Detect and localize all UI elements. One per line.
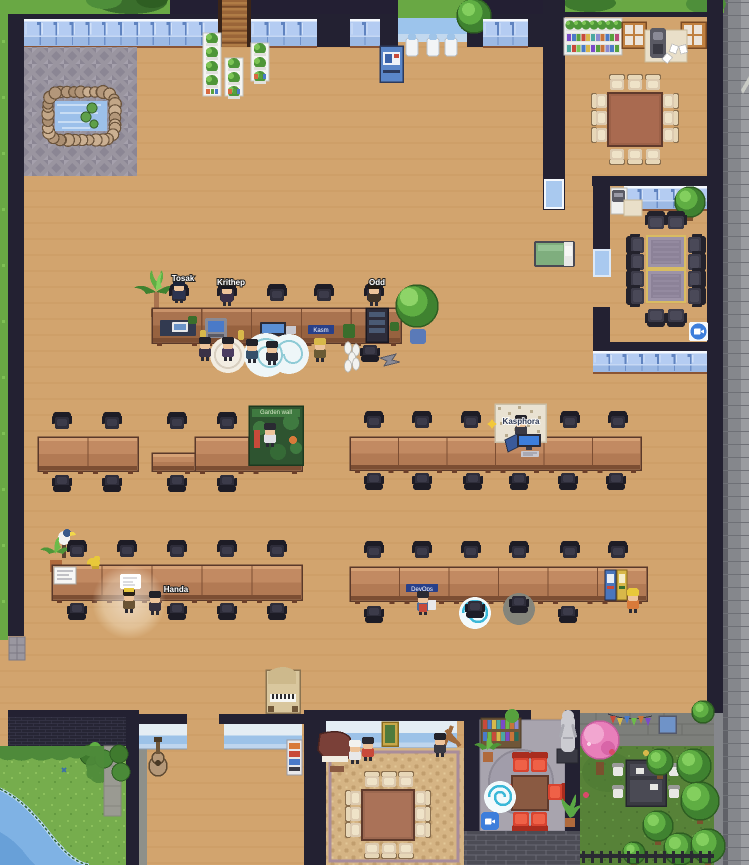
svg-text:Handa: Handa [164, 585, 189, 594]
svg-text:Tosak: Tosak [172, 274, 195, 283]
svg-text:Krithep: Krithep [217, 278, 245, 287]
svg-text:Kasphora: Kasphora [503, 417, 540, 426]
svg-text:Garden wall: Garden wall [260, 410, 292, 416]
svg-text:Odd: Odd [369, 278, 385, 287]
svg-text:Kasm: Kasm [313, 328, 328, 334]
